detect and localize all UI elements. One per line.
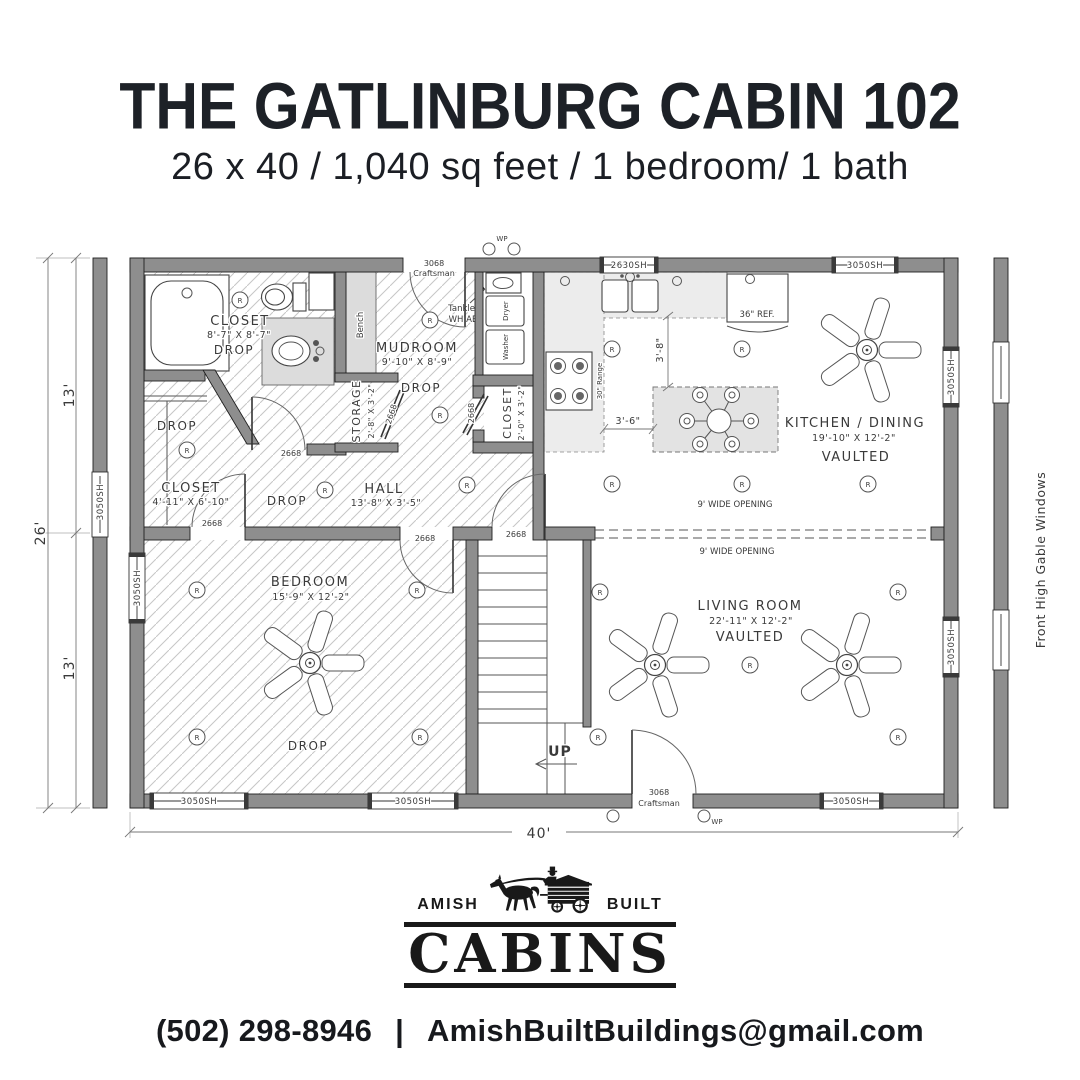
door-2668-label: 2668 [467,403,476,423]
wide-opening: 9' WIDE OPENING 9' WIDE OPENING [595,500,931,557]
dim-13-top: 13' [62,383,78,408]
label-hall-name: HALL [364,482,403,497]
label-laundry-closet-name: CLOSET [501,387,514,439]
label-drop: DROP [157,419,197,433]
horse-wagon-icon [484,858,602,920]
label-bedroom-name: BEDROOM [271,575,349,590]
label-bedroom-dims: 15'-9" X 12'-2" [272,592,349,603]
label-living-note: VAULTED [716,630,785,645]
window-label: 2630SH [611,261,647,271]
wide-opening-label: 9' WIDE OPENING [700,547,775,557]
door-2668-label: 2668 [415,534,435,543]
range-label: 30" Range [596,363,604,400]
door-3068-label: 3068 [424,259,444,268]
logo-word-amish: AMISH [417,896,479,920]
label-mudroom-dims: 9'-10" X 8'-9" [382,357,453,368]
email-address: AmishBuiltBuildings@gmail.com [427,1013,924,1048]
door-3068-label: Craftsman [638,799,680,808]
label-hall-dims: 13'-8" X 3'-5" [351,498,422,509]
dim-3-6: 3'-6" [616,416,641,427]
label-bedroom-note: DROP [288,739,328,753]
dim-26: 26' [33,521,49,546]
wide-opening-label: 9' WIDE OPENING [698,500,773,510]
floor-plan: R [0,225,1080,865]
label-mudroom-note: DROP [401,381,441,395]
poster-page: THE GATLINBURG CABIN 102 26 x 40 / 1,040… [0,0,1080,1080]
logo-word-cabins: CABINS [404,927,676,981]
label-closet-master-note: DROP [214,343,254,357]
window-label: 3050SH [395,797,431,807]
page-title: THE GATLINBURG CABIN 102 [0,68,1080,144]
dim-13-bottom: 13' [62,656,78,681]
phone-number: (502) 298-8946 [156,1013,372,1048]
stairs-up-label: UP [548,744,572,760]
door-2668-label: 2668 [281,449,301,458]
fridge-label: 36" REF. [740,310,775,320]
kitchen-counters: 30" Range 36" REF. [544,272,788,452]
label-living-dims: 22'-11" X 12'-2" [709,616,793,627]
label-storage-dims: 2'-8" X 3'-2" [367,384,376,439]
label-drop: DROP [267,494,307,508]
dim-3-8: 3'-8" [655,338,666,363]
washer-label: Washer [502,334,510,360]
label-closet-master-name: CLOSET [210,314,270,329]
island-table [707,409,731,433]
label-storage-name: STORAGE [350,380,363,443]
wp-label: WP [711,818,722,826]
bench-label: Bench [356,312,366,339]
window-label: 3050SH [947,359,957,395]
window-label: 3050SH [833,797,869,807]
vanity-sink [262,318,334,385]
window-label: 3050SH [947,629,957,665]
gable-windows-note: Front High Gable Windows [1033,472,1048,649]
label-kitchen-name: KITCHEN / DINING [785,416,925,431]
window-label: 3050SH [96,484,106,520]
label-kitchen-dims: 19'-10" X 12'-2" [812,433,896,444]
wp-label: WP [496,235,507,243]
door-3068-label: Craftsman [413,269,455,278]
staircase: UP [478,540,583,794]
window-label: 3050SH [181,797,217,807]
logo-word-built: BUILT [607,896,663,920]
label-living-name: LIVING ROOM [698,599,803,614]
kitchen-island [653,387,778,452]
company-logo: AMISH [404,856,676,988]
label-laundry-closet-dims: 2'-0" X 3'-2" [517,386,526,441]
window-label: 3050SH [133,570,143,606]
label-kitchen-note: VAULTED [822,450,891,465]
label-mudroom-name: MUDROOM [376,341,458,356]
label-bedroom-closet-dims: 4'-11" X 6'-10" [152,497,229,508]
contact-separator: | [395,1013,404,1048]
door-3068-label: 3068 [649,788,669,797]
contact-line: (502) 298-8946 | AmishBuiltBuildings@gma… [0,1013,1080,1049]
door-2668-label: 2668 [202,519,222,528]
window-label: 3050SH [847,261,883,271]
label-bedroom-closet-name: CLOSET [161,481,221,496]
fridge: 36" REF. [727,274,788,332]
linen-cabinet [309,273,334,310]
page-subtitle: 26 x 40 / 1,040 sq feet / 1 bedroom/ 1 b… [0,146,1080,189]
dryer-label: Dryer [502,301,510,321]
label-closet-master-dims: 8'-7" X 8'-7" [207,330,271,341]
dim-40: 40' [527,826,552,842]
door-2668-label: 2668 [506,530,526,539]
